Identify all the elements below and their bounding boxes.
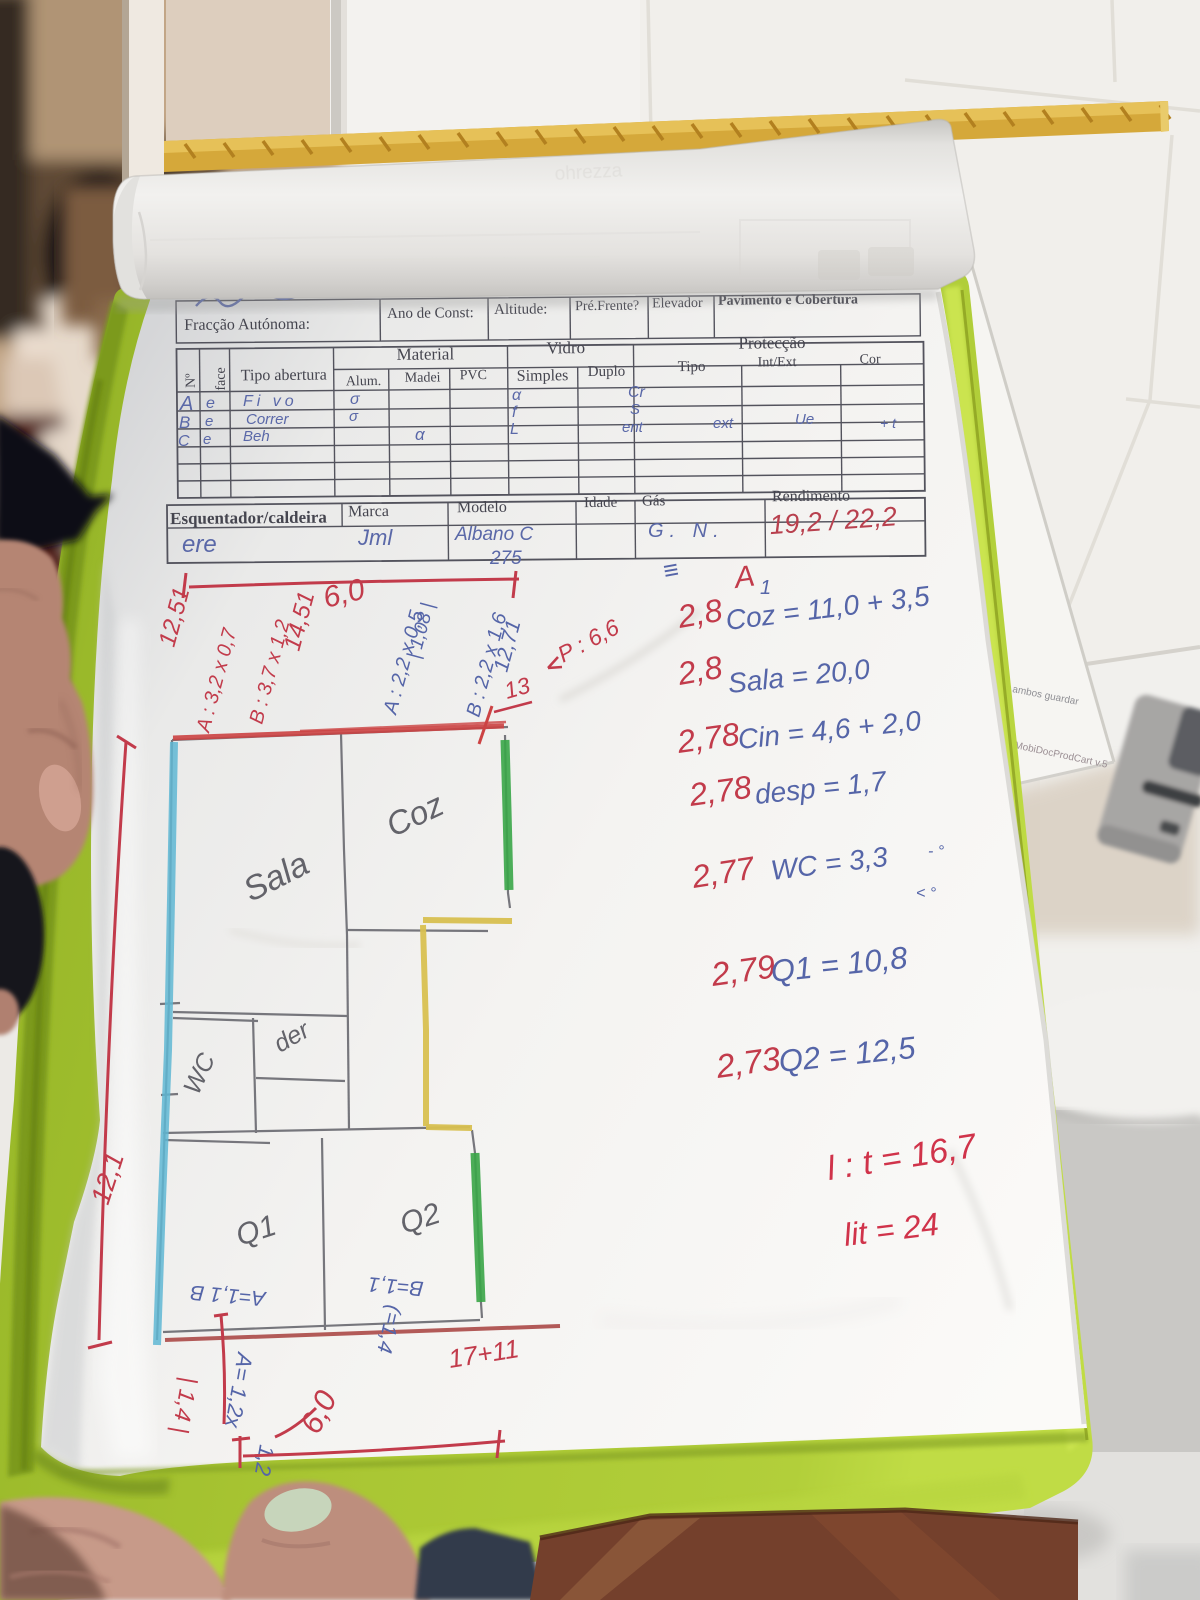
svg-text:e: e — [206, 395, 215, 412]
svg-text:ent: ent — [622, 419, 644, 436]
svg-text:Protecção: Protecção — [738, 333, 805, 353]
svg-text:Beh: Beh — [243, 428, 270, 445]
svg-text:A: A — [179, 393, 193, 415]
svg-text:Ue: Ue — [795, 411, 814, 428]
svg-text:Marca: Marca — [348, 503, 389, 520]
svg-text:Material: Material — [396, 344, 454, 364]
svg-text:e: e — [205, 413, 213, 430]
svg-text:Cr: Cr — [628, 384, 646, 401]
svg-text:< °: < ° — [916, 885, 937, 902]
svg-text:α: α — [512, 387, 522, 404]
svg-text:σ: σ — [349, 408, 359, 425]
svg-text:σ: σ — [350, 391, 361, 408]
svg-text:Jml: Jml — [357, 525, 393, 550]
svg-text:ohrezza: ohrezza — [554, 160, 623, 185]
svg-text:- °: - ° — [928, 843, 945, 860]
svg-text:Modelo: Modelo — [457, 499, 507, 516]
svg-text:B=1,1: B=1,1 — [367, 1272, 424, 1300]
svg-text:Rendimento: Rendimento — [772, 488, 850, 506]
svg-text:Nº: Nº — [184, 373, 199, 388]
svg-text:face: face — [214, 367, 229, 390]
svg-text:G. N.: G. N. — [648, 520, 725, 542]
svg-text:Gás: Gás — [642, 493, 666, 509]
svg-text:B: B — [179, 413, 190, 432]
svg-text:C: C — [178, 433, 190, 450]
svg-text:1,2: 1,2 — [250, 1443, 280, 1477]
svg-text:+ t: + t — [880, 415, 897, 431]
svg-text:Albano C: Albano C — [454, 524, 533, 545]
svg-text:Vidro: Vidro — [546, 338, 585, 357]
svg-text:L: L — [510, 421, 519, 438]
svg-text:Int/Ext: Int/Ext — [758, 355, 797, 370]
svg-text:Duplo: Duplo — [588, 364, 626, 380]
svg-text:ere: ere — [182, 531, 217, 558]
svg-text:e: e — [203, 431, 211, 448]
svg-text:Tipo abertura: Tipo abertura — [241, 367, 327, 385]
svg-text:α: α — [415, 425, 426, 444]
svg-text:Esquentador/caldeira: Esquentador/caldeira — [170, 508, 327, 529]
svg-text:Fracção Autónoma:: Fracção Autónoma: — [184, 316, 310, 334]
svg-text:Fi vo: Fi vo — [243, 393, 298, 410]
svg-text:Idade: Idade — [584, 495, 618, 511]
svg-text:ext: ext — [713, 415, 734, 432]
svg-text:Cor: Cor — [860, 352, 881, 367]
svg-text:Madei: Madei — [405, 370, 441, 385]
svg-text:275: 275 — [489, 548, 522, 569]
svg-text:Simples: Simples — [517, 367, 569, 384]
svg-text:1: 1 — [760, 577, 771, 599]
svg-text:Correr: Correr — [246, 411, 290, 428]
svg-text:Alum.: Alum. — [346, 374, 382, 389]
svg-text:PVC: PVC — [460, 368, 487, 383]
svg-text:Tipo: Tipo — [678, 359, 706, 375]
svg-text:S: S — [630, 401, 640, 418]
